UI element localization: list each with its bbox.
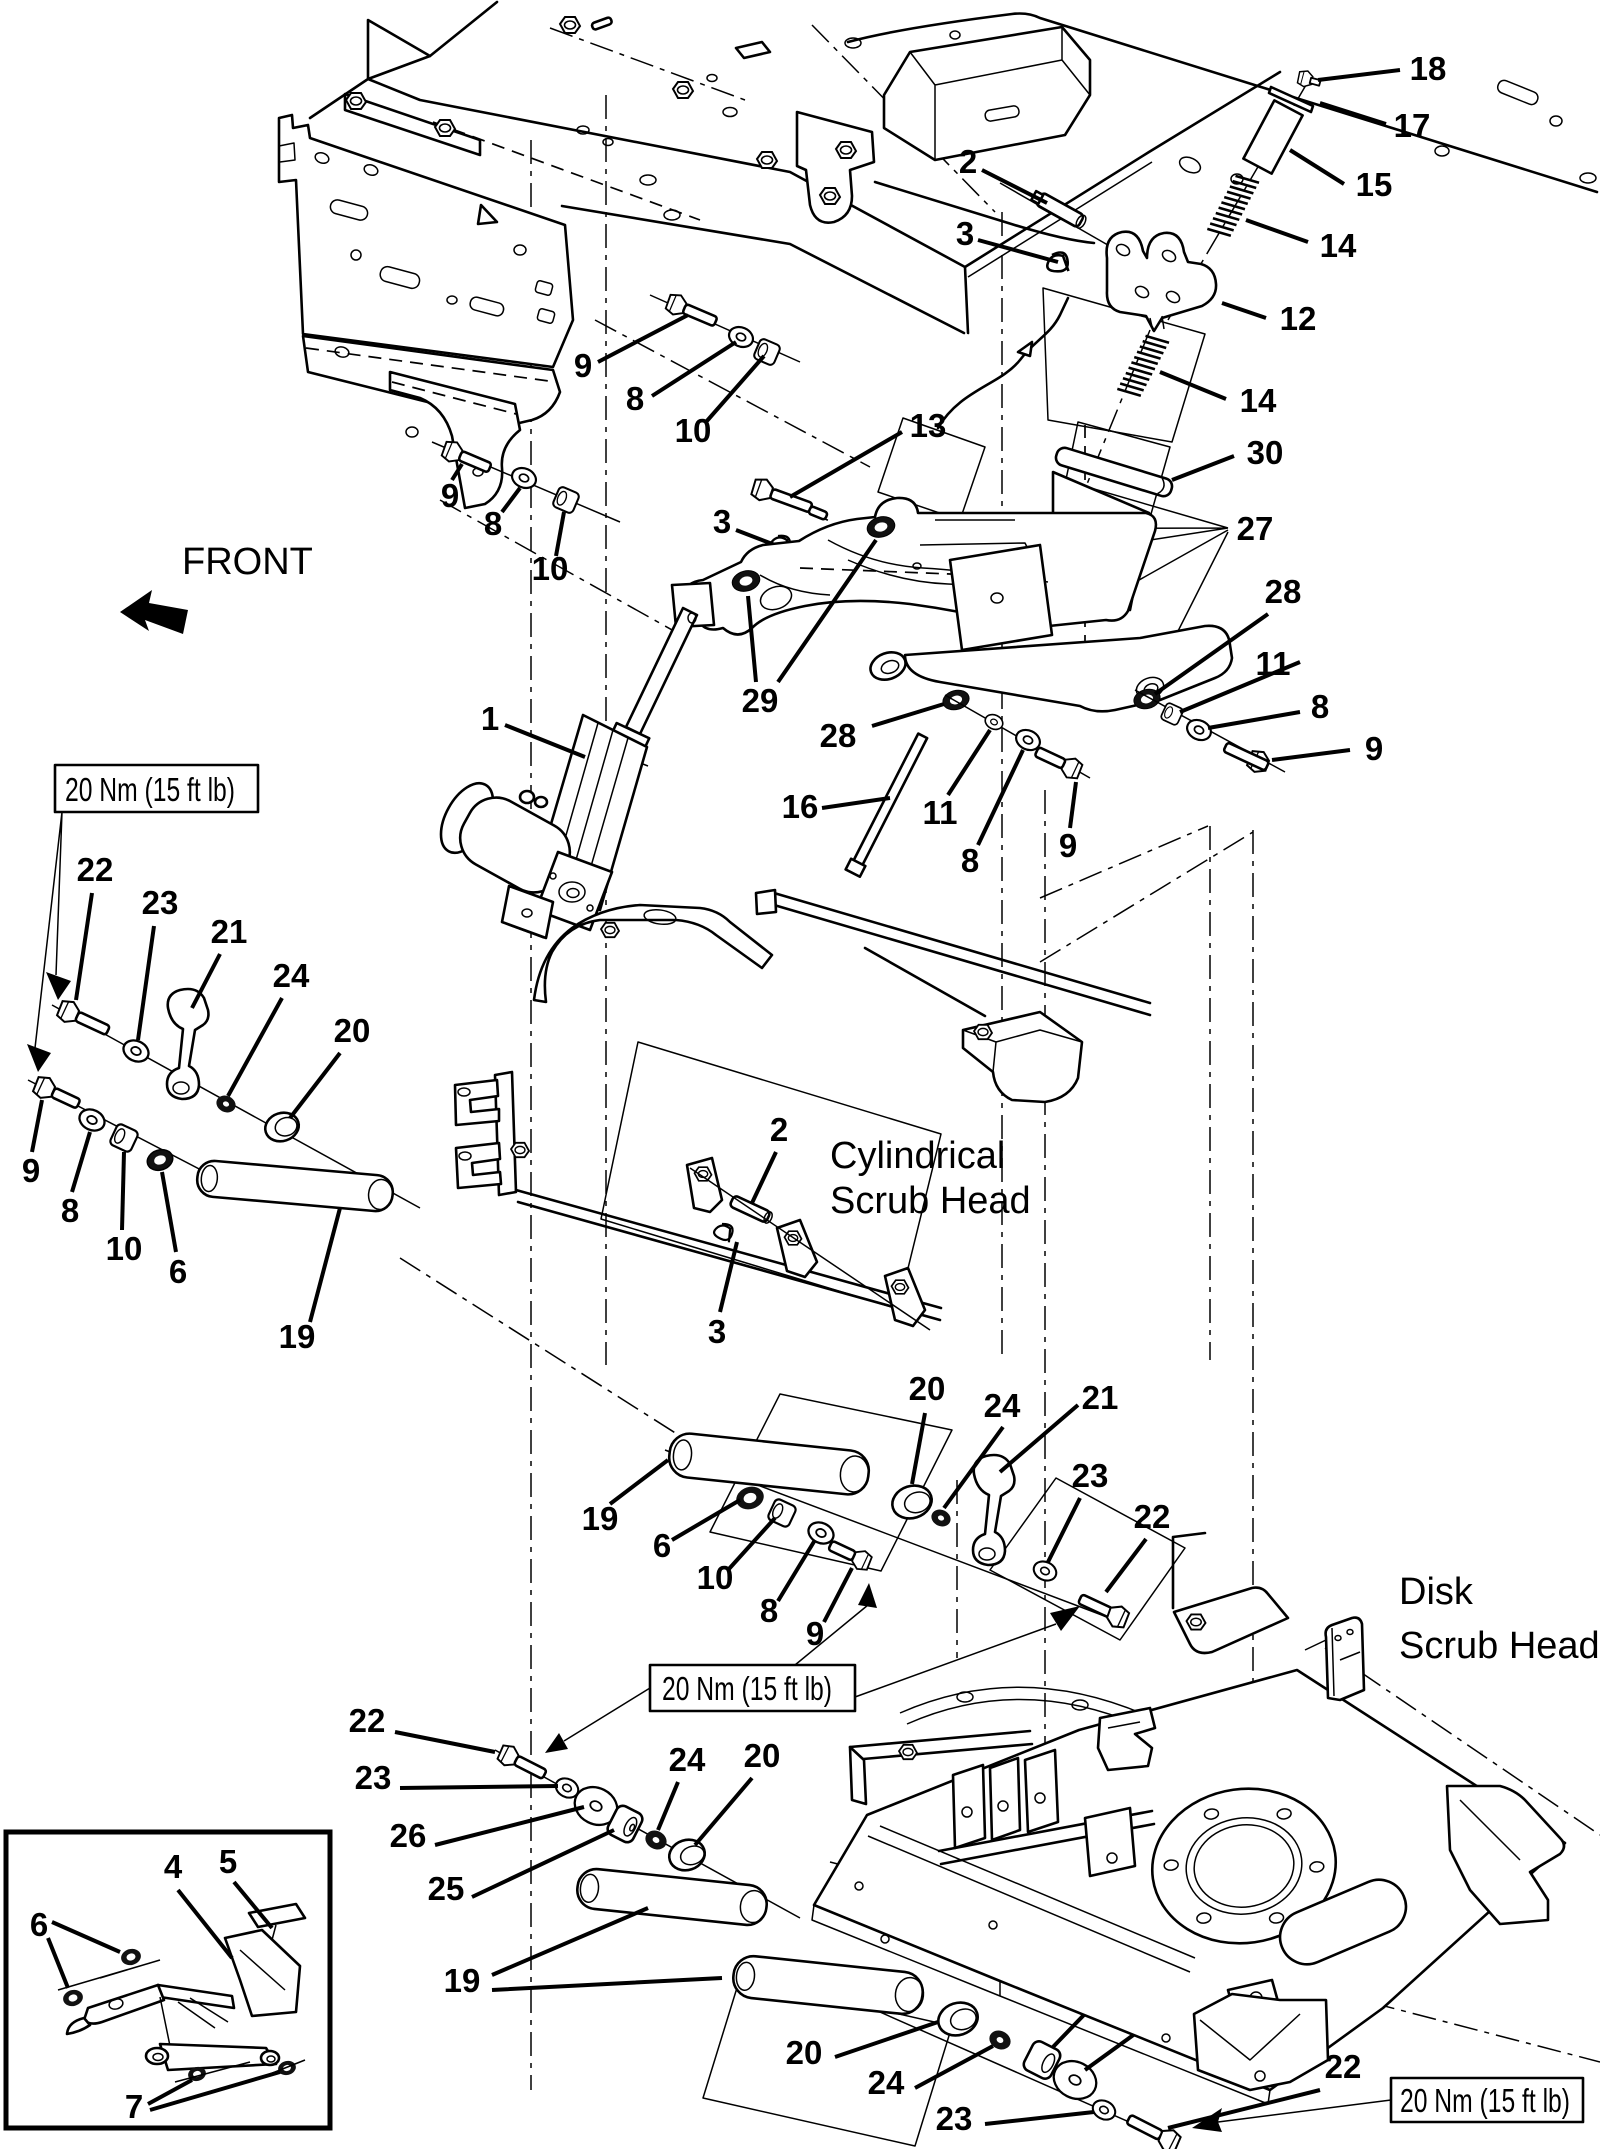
svg-text:Cylindrical: Cylindrical <box>830 1135 1005 1177</box>
svg-text:24: 24 <box>273 957 310 994</box>
svg-text:2: 2 <box>770 1111 788 1148</box>
svg-text:18: 18 <box>1410 50 1447 87</box>
svg-text:10: 10 <box>697 1559 734 1596</box>
svg-text:21: 21 <box>1082 1379 1119 1416</box>
svg-text:6: 6 <box>653 1527 671 1564</box>
svg-text:27: 27 <box>1237 510 1274 547</box>
svg-text:24: 24 <box>669 1741 706 1778</box>
svg-text:FRONT: FRONT <box>182 541 313 583</box>
svg-text:20: 20 <box>744 1737 781 1774</box>
svg-text:8: 8 <box>484 505 502 542</box>
svg-text:12: 12 <box>1280 300 1317 337</box>
svg-text:19: 19 <box>582 1500 619 1537</box>
svg-text:30: 30 <box>1247 434 1284 471</box>
svg-text:3: 3 <box>956 215 974 252</box>
svg-text:Disk: Disk <box>1399 1571 1474 1613</box>
svg-text:23: 23 <box>142 884 179 921</box>
svg-text:9: 9 <box>574 347 592 384</box>
svg-text:16: 16 <box>782 788 819 825</box>
svg-text:22: 22 <box>1134 1498 1171 1535</box>
svg-text:22: 22 <box>1325 2048 1362 2085</box>
svg-text:23: 23 <box>355 1759 392 1796</box>
svg-text:8: 8 <box>961 842 979 879</box>
svg-text:29: 29 <box>742 682 779 719</box>
svg-text:20 Nm (15 ft lb): 20 Nm (15 ft lb) <box>662 1670 832 1707</box>
svg-text:2: 2 <box>959 143 977 180</box>
svg-text:15: 15 <box>1356 166 1393 203</box>
svg-text:25: 25 <box>428 1870 465 1907</box>
svg-text:11: 11 <box>923 794 958 831</box>
svg-text:5: 5 <box>219 1843 237 1880</box>
svg-text:6: 6 <box>169 1253 187 1290</box>
svg-text:7: 7 <box>125 2088 143 2125</box>
svg-text:3: 3 <box>708 1313 726 1350</box>
svg-text:28: 28 <box>1265 573 1302 610</box>
svg-text:3: 3 <box>713 503 731 540</box>
svg-text:9: 9 <box>22 1152 40 1189</box>
svg-text:24: 24 <box>868 2064 905 2101</box>
svg-text:8: 8 <box>760 1592 778 1629</box>
svg-text:10: 10 <box>106 1230 143 1267</box>
svg-text:19: 19 <box>279 1318 316 1355</box>
svg-text:14: 14 <box>1240 382 1277 419</box>
svg-text:20 Nm (15 ft lb): 20 Nm (15 ft lb) <box>65 771 235 808</box>
svg-text:Scrub Head: Scrub Head <box>1399 1625 1600 1667</box>
svg-text:20: 20 <box>786 2034 823 2071</box>
svg-text:9: 9 <box>806 1615 824 1652</box>
svg-text:19: 19 <box>444 1962 481 1999</box>
svg-text:1: 1 <box>481 700 499 737</box>
svg-text:8: 8 <box>61 1192 79 1229</box>
svg-text:9: 9 <box>1059 827 1077 864</box>
svg-text:26: 26 <box>390 1817 427 1854</box>
svg-text:23: 23 <box>936 2100 973 2137</box>
svg-text:20: 20 <box>909 1370 946 1407</box>
svg-text:Scrub Head: Scrub Head <box>830 1180 1031 1222</box>
svg-text:24: 24 <box>984 1387 1021 1424</box>
svg-text:22: 22 <box>77 851 114 888</box>
svg-text:10: 10 <box>675 412 712 449</box>
svg-text:21: 21 <box>211 913 248 950</box>
svg-text:8: 8 <box>626 380 644 417</box>
svg-text:4: 4 <box>164 1848 183 1885</box>
svg-text:22: 22 <box>349 1702 386 1739</box>
svg-text:9: 9 <box>441 477 459 514</box>
svg-text:20 Nm (15 ft lb): 20 Nm (15 ft lb) <box>1400 2082 1570 2119</box>
svg-text:13: 13 <box>910 407 947 444</box>
svg-text:8: 8 <box>1311 688 1329 725</box>
svg-text:20: 20 <box>334 1012 371 1049</box>
svg-text:17: 17 <box>1394 107 1431 144</box>
svg-text:14: 14 <box>1320 227 1357 264</box>
svg-text:6: 6 <box>30 1906 48 1943</box>
svg-text:10: 10 <box>532 550 569 587</box>
svg-text:28: 28 <box>820 717 857 754</box>
svg-text:9: 9 <box>1365 730 1383 767</box>
svg-text:23: 23 <box>1072 1457 1109 1494</box>
